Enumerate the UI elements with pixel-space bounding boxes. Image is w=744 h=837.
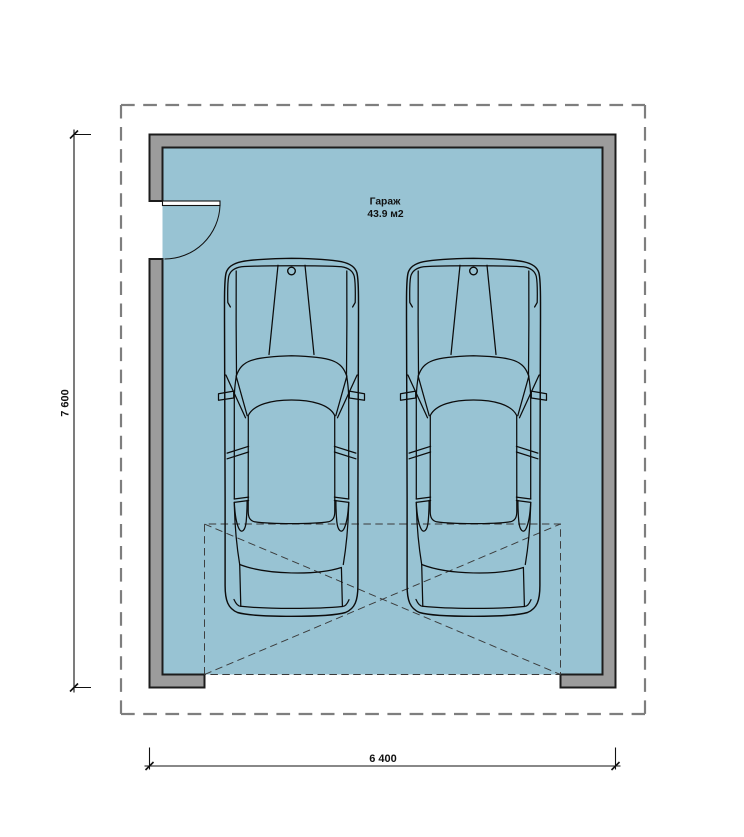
svg-text:Гараж: Гараж (370, 197, 401, 208)
svg-text:7 600: 7 600 (60, 389, 72, 417)
svg-text:6 400: 6 400 (369, 753, 397, 765)
svg-text:43.9 м2: 43.9 м2 (367, 209, 404, 220)
